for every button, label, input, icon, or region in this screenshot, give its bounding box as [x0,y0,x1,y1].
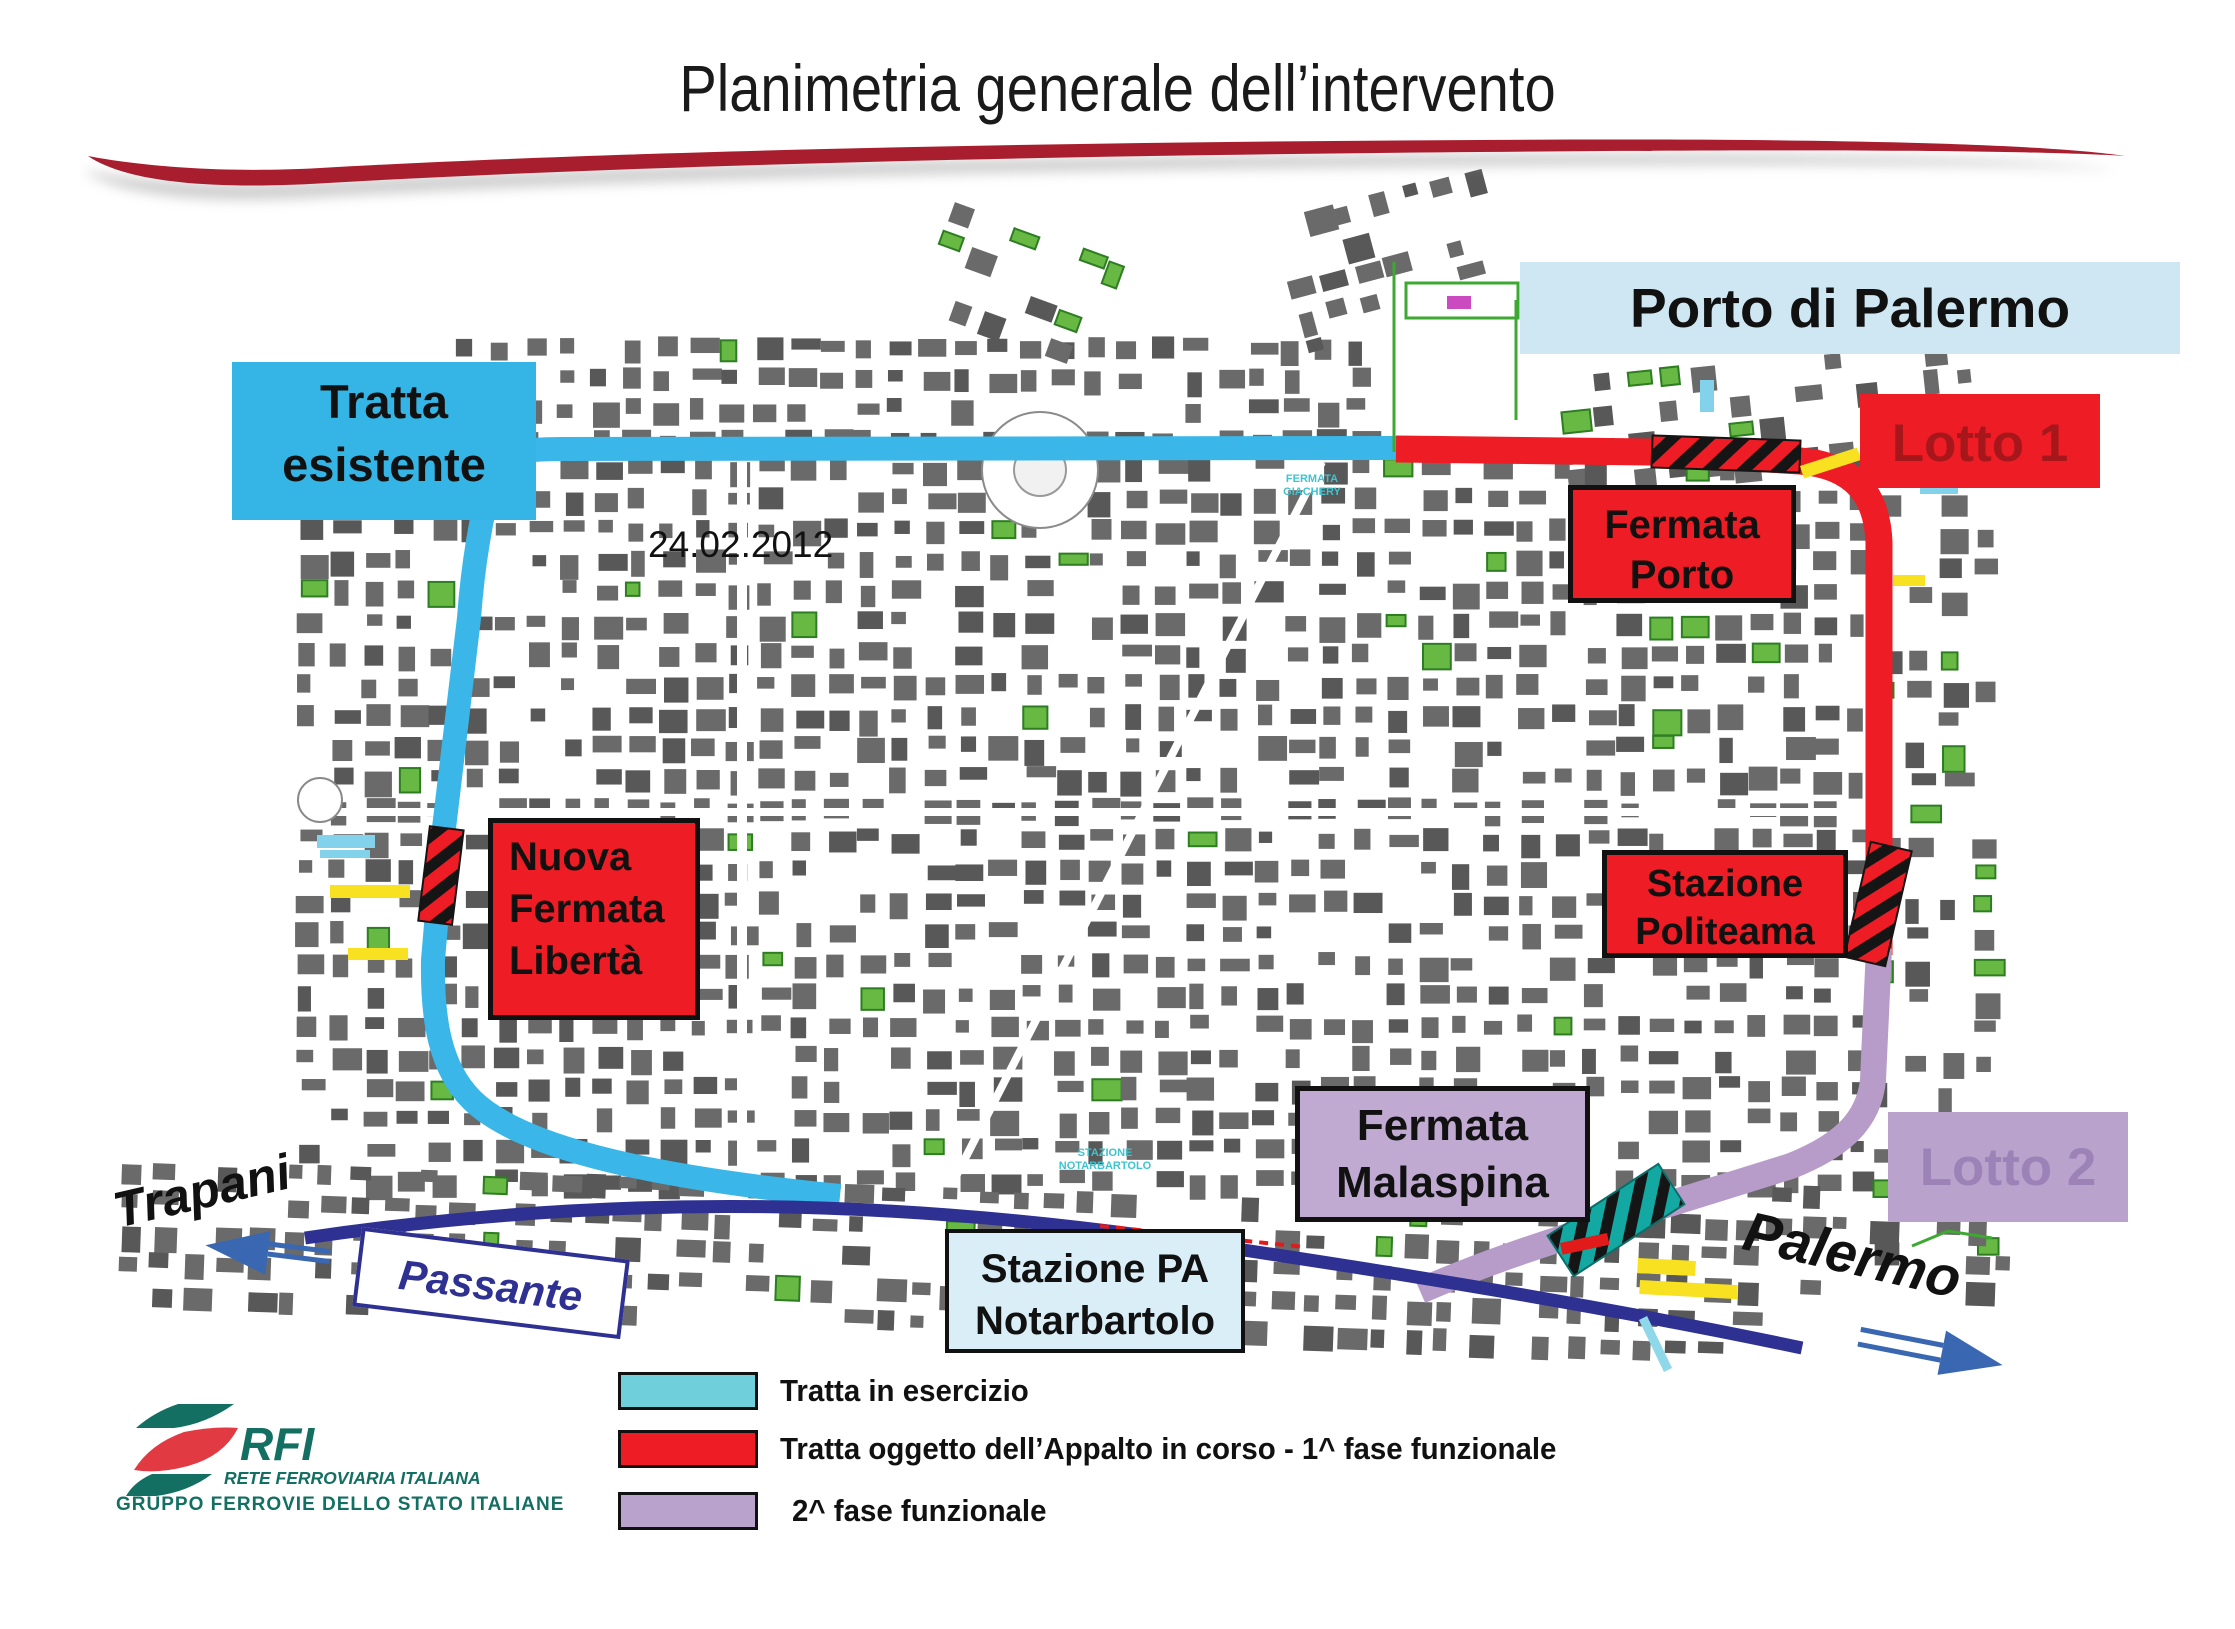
tratta-esistente-label: Tratta esistente [232,362,536,520]
notarbartolo-line2: Notarbartolo [949,1295,1241,1347]
legend-label-esercizio: Tratta in esercizio [780,1373,1029,1409]
rfi-logo-text: RFI [240,1418,315,1470]
micro-notarbartolo-line1: STAZIONE [1040,1147,1170,1160]
palermo-arrow-icon [1855,1315,2007,1387]
fermata-porto-line2: Porto [1573,550,1791,600]
politeama-line2: Politeama [1607,909,1843,957]
legend-swatch-esercizio [618,1372,758,1410]
map-microlabel-stazione-notarbartolo: STAZIONE NOTARBARTOLO [1040,1147,1170,1172]
liberta-line3: Libertà [509,935,695,987]
legend-swatch-fase2 [618,1492,758,1530]
liberta-line2: Fermata [509,883,695,935]
stazione-politeama-label: Stazione Politeama [1602,850,1848,958]
rfi-logo-line2: GRUPPO FERROVIE DELLO STATO ITALIANE [116,1494,564,1515]
nuova-fermata-liberta-label: Nuova Fermata Libertà [488,818,700,1020]
lotto2-label: Lotto 2 [1888,1112,2128,1222]
liberta-line1: Nuova [509,831,695,883]
palermo-map [0,0,2235,1629]
stazione-notarbartolo-label: Stazione PA Notarbartolo [945,1229,1245,1353]
worksite-hatch-porto [1651,435,1800,472]
rfi-logo: RFI RETE FERROVIARIA ITALIANA GRUPPO FER… [112,1398,572,1533]
legend-swatch-appalto [618,1430,758,1468]
map-date: 24.02.2012 [648,524,833,566]
legend-label-fase2: 2^ fase funzionale [792,1493,1046,1529]
worksite-hatch-liberta [418,826,463,924]
map-microlabel-fermata-giachery: FERMATA GIACHERY [1262,473,1362,498]
slide: Planimetria generale dell’intervento Por… [0,0,2235,1629]
legend-item-appalto: Tratta oggetto dell’Appalto in corso - 1… [618,1430,1597,1468]
fermata-porto-line1: Fermata [1573,500,1791,550]
notarbartolo-line1: Stazione PA [949,1243,1241,1295]
micro-giachery-line2: GIACHERY [1262,486,1362,499]
title-swoosh [80,128,2150,228]
malaspina-line2: Malaspina [1300,1154,1585,1211]
micro-giachery-line1: FERMATA [1262,473,1362,486]
micro-notarbartolo-line2: NOTARBARTOLO [1040,1160,1170,1173]
legend-label-appalto: Tratta oggetto dell’Appalto in corso - 1… [780,1431,1556,1467]
fermata-porto-label: Fermata Porto [1568,485,1796,603]
legend-item-fase2: 2^ fase funzionale [618,1492,1060,1530]
lotto1-label: Lotto 1 [1860,394,2100,488]
fermata-malaspina-label: Fermata Malaspina [1295,1086,1590,1222]
legend-item-esercizio: Tratta in esercizio [618,1372,1042,1410]
fs-logo-mark [126,1404,238,1496]
page-title: Planimetria generale dell’intervento [168,50,2068,126]
politeama-line1: Stazione [1607,861,1843,909]
rfi-logo-line1: RETE FERROVIARIA ITALIANA [224,1468,481,1488]
porto-di-palermo-label: Porto di Palermo [1520,262,2180,354]
malaspina-line1: Fermata [1300,1097,1585,1154]
